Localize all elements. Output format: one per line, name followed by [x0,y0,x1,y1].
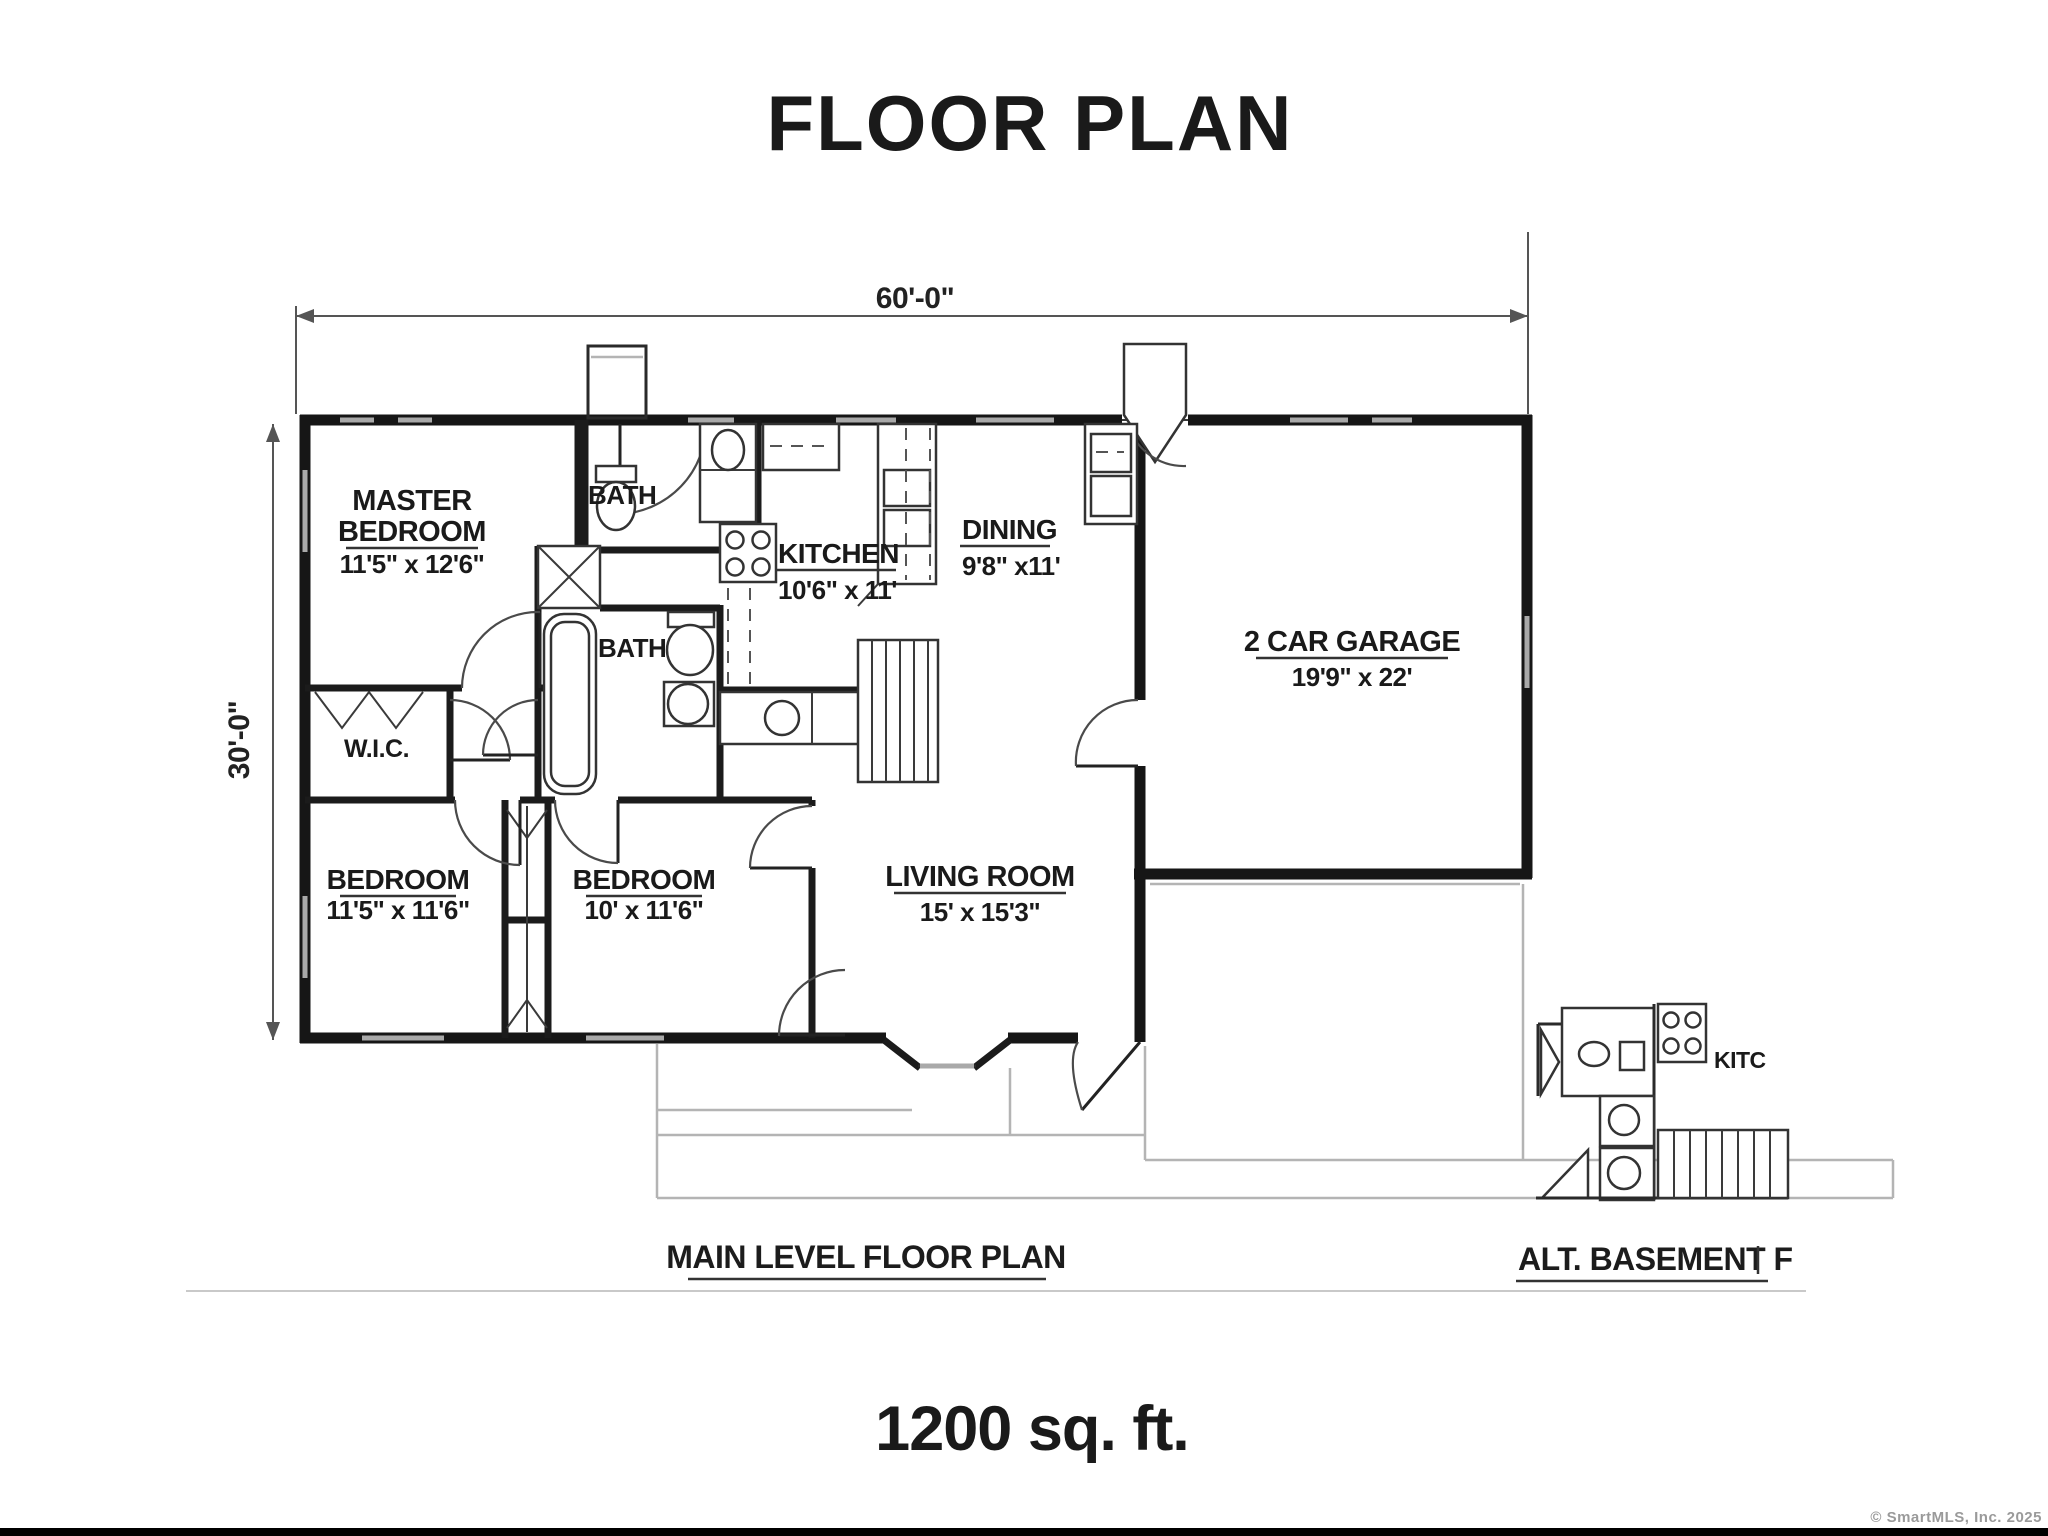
basement-thumbnail: KITC [1536,1004,1788,1200]
wic-door [450,700,510,760]
master-bedroom-door [462,612,540,688]
room-label-master-bedroom: MASTER BEDROOM 11'5" x 12'6" [338,485,486,579]
chimney [588,346,646,418]
svg-text:19'9" x 22': 19'9" x 22' [1292,662,1412,692]
garage-house-door [1076,700,1138,766]
bottom-bar [0,1528,2048,1536]
svg-text:11'5" x 12'6": 11'5" x 12'6" [340,549,485,579]
room-label-bedroom-middle: BEDROOM 10' x 11'6" [573,864,716,925]
rear-door-living [1073,1042,1140,1110]
svg-text:11'5" x 11'6": 11'5" x 11'6" [326,895,469,925]
room-label-dining: DINING 9'8" x11' [960,514,1060,581]
svg-text:DINING: DINING [962,514,1057,545]
dimension-height-label: 30'-0" [223,701,256,779]
svg-text:BEDROOM: BEDROOM [338,516,486,548]
dimension-left: 30'-0" [223,424,280,1040]
svg-text:MASTER: MASTER [352,485,472,517]
caption-alt-basement: ALT. BASEMENT F [1516,1241,1793,1281]
page-title: FLOOR PLAN [767,79,1294,167]
svg-text:BEDROOM: BEDROOM [327,864,470,895]
dimension-top: 60'-0" [296,232,1528,414]
room-label-bedroom-left: BEDROOM 11'5" x 11'6" [326,864,469,925]
svg-text:BEDROOM: BEDROOM [573,864,716,895]
room-label-living-room: LIVING ROOM 15' x 15'3" [885,861,1074,927]
bedroom-middle-door-living [750,806,812,868]
total-area-label: 1200 sq. ft. [875,1394,1189,1464]
caption-main-level: MAIN LEVEL FLOOR PLAN [666,1239,1066,1279]
stairs [858,640,938,782]
room-label-garage: 2 CAR GARAGE 19'9" x 22' [1244,626,1461,692]
room-label-wic: W.I.C. [344,735,409,763]
credit-text: © SmartMLS, Inc. 2025 [1870,1509,2042,1526]
dimension-width-label: 60'-0" [876,282,954,315]
bedroom-left-door [455,800,520,865]
floor-plan-sheet: FLOOR PLAN 60'-0" 30'-0" [0,0,2048,1536]
room-label-bath-lower: BATH [598,633,666,663]
svg-text:10'6" x 11': 10'6" x 11' [778,575,897,605]
svg-text:LIVING ROOM: LIVING ROOM [885,861,1074,893]
svg-text:15' x 15'3": 15' x 15'3" [920,897,1040,927]
svg-text:9'8" x11': 9'8" x11' [962,551,1060,581]
wic-closet-detail [315,692,423,728]
basement-kitchen-label: KITC [1714,1047,1766,1073]
room-label-bath-upper: BATH [588,480,656,510]
shower [538,546,600,608]
svg-text:MAIN LEVEL FLOOR PLAN: MAIN LEVEL FLOOR PLAN [666,1239,1066,1275]
svg-text:ALT. BASEMENT F: ALT. BASEMENT F [1518,1241,1793,1277]
bedroom-middle-door [555,800,618,863]
bath-lower-door [483,700,538,755]
svg-text:2 CAR GARAGE: 2 CAR GARAGE [1244,626,1461,658]
svg-text:KITCHEN: KITCHEN [778,538,899,569]
dining-cabinet [1085,424,1137,524]
svg-text:10' x 11'6": 10' x 11'6" [585,895,704,925]
